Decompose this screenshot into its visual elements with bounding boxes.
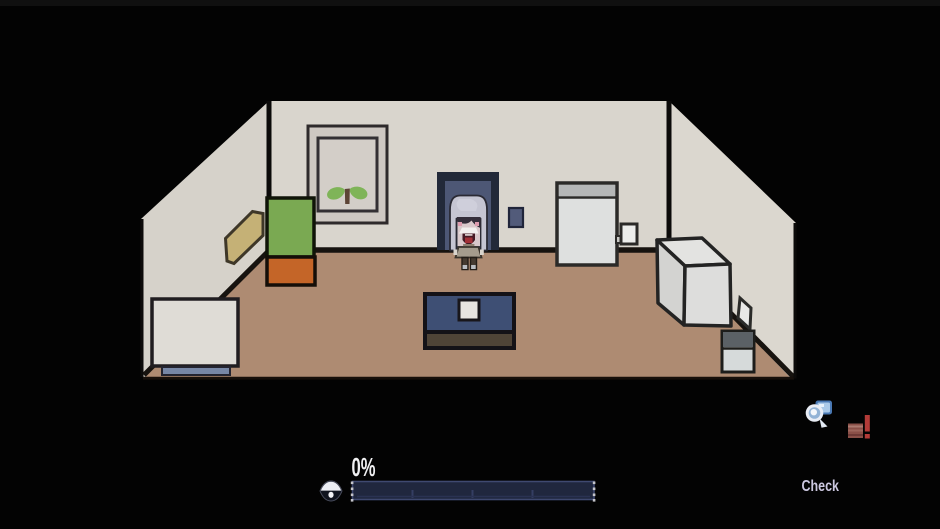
svg-text:Check: Check — [802, 478, 840, 495]
svg-text:0%: 0% — [352, 452, 376, 482]
